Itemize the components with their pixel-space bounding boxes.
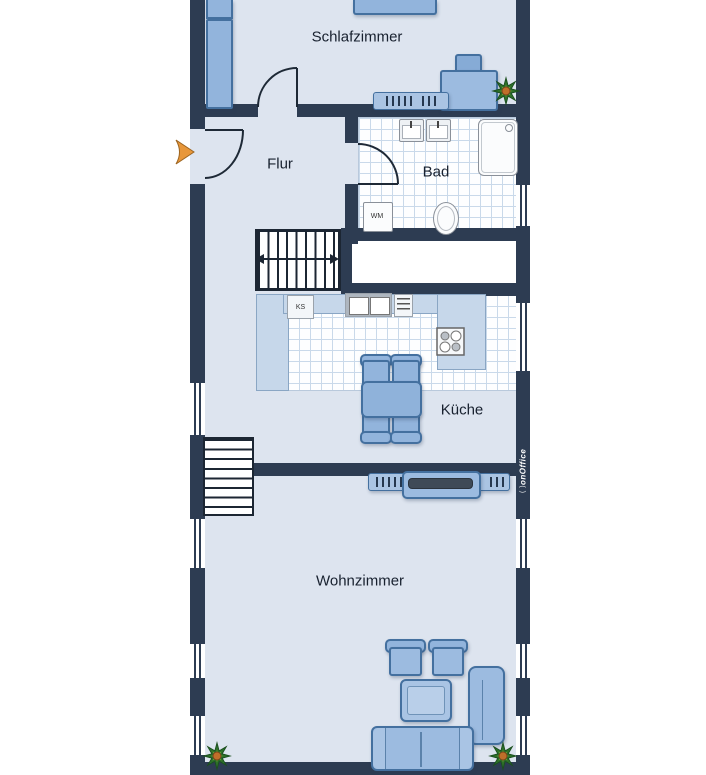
stairs-lower <box>203 437 254 516</box>
bedroom-wardrobe <box>206 19 233 109</box>
room-label-kueche: Küche <box>441 402 484 419</box>
watermark-mark-icon: ( ) <box>520 485 527 493</box>
fridge-label: KS <box>287 295 314 319</box>
radiator-fins <box>386 96 414 106</box>
bedroom-wardrobe-top <box>206 0 233 19</box>
kitchen-chair-back <box>390 431 422 444</box>
room-label-flur: Flur <box>267 156 293 173</box>
kitchen-counter-stove-block <box>437 294 486 370</box>
wall-bottom <box>190 762 530 775</box>
faucet-icon <box>437 121 439 128</box>
window-left-living-3 <box>190 714 205 757</box>
watermark-brand: onOffice <box>519 448 528 484</box>
radiator-fins <box>490 477 506 487</box>
window-right-living-2 <box>516 642 530 680</box>
window-left-living-1 <box>190 517 205 570</box>
bath-door-opening <box>345 143 358 184</box>
watermark-logo: ( ) onOffice <box>516 424 530 517</box>
window-right-kitchen <box>516 301 530 373</box>
sink-basin-left <box>349 297 369 315</box>
sofa-arm-right <box>459 728 472 769</box>
void-room <box>352 241 516 283</box>
dishwasher-rack-lines <box>397 298 410 313</box>
toilet <box>433 202 459 235</box>
sofa-arm-left <box>373 728 386 769</box>
armchair <box>389 647 422 676</box>
sofa <box>371 726 474 771</box>
stairs-upper <box>255 229 341 291</box>
armchair <box>432 647 464 676</box>
window-left-living-2 <box>190 642 205 680</box>
kitchen-table <box>361 381 422 418</box>
coffee-table-top <box>407 686 445 715</box>
tv <box>408 478 473 489</box>
dishwasher <box>394 294 413 317</box>
room-label-schlafzimmer: Schlafzimmer <box>312 29 403 46</box>
floorplan-canvas: ( ) onOffice KS <box>0 0 706 775</box>
window-right-living-1 <box>516 517 530 570</box>
kitchen-chair-back <box>360 431 392 444</box>
chaise-arm <box>473 680 483 740</box>
bathroom-sink <box>399 119 424 142</box>
entrance-door-opening <box>190 129 205 184</box>
bathroom-sink <box>426 119 451 142</box>
radiator-bedroom <box>373 92 449 110</box>
room-label-bad: Bad <box>423 164 450 181</box>
kitchen-sink-unit <box>345 293 392 317</box>
sink-basin-right <box>370 297 390 315</box>
room-label-wohnzimmer: Wohnzimmer <box>316 573 404 590</box>
washing-machine-label: WM <box>363 202 391 230</box>
toilet-bowl <box>437 206 455 231</box>
shower-head-icon <box>505 124 513 132</box>
window-left-kitchen <box>190 381 205 437</box>
shower <box>478 119 518 176</box>
coffee-table <box>400 679 452 722</box>
sofa-seam <box>420 732 422 767</box>
faucet-icon <box>410 121 412 128</box>
window-right-bath <box>516 183 530 228</box>
bedroom-dresser <box>353 0 437 15</box>
window-right-living-3 <box>516 714 530 757</box>
radiator-fins <box>422 96 437 106</box>
wall-hall-bath-upper <box>345 104 358 143</box>
